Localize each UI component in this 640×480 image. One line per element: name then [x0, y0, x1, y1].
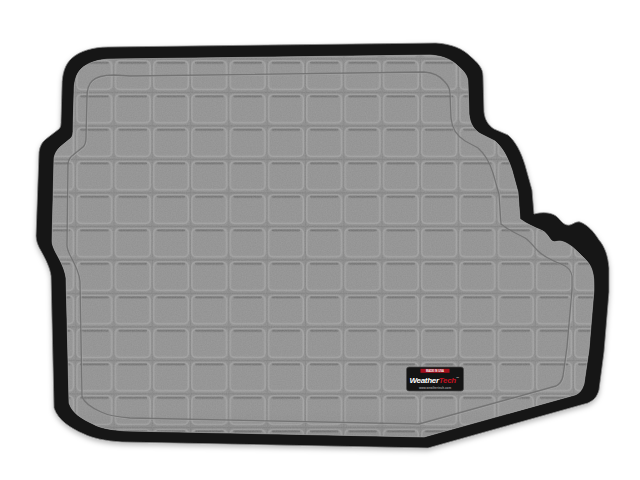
- product-photo-stage: MADE IN USA WeatherTech™ www.weathertech…: [0, 0, 640, 480]
- badge-url-label: www.weathertech.com: [418, 386, 452, 390]
- badge-made-in-usa-label: MADE IN USA: [426, 369, 444, 373]
- brand-trademark-symbol: ™: [456, 376, 459, 380]
- weathertech-badge: MADE IN USA WeatherTech™ www.weathertech…: [407, 367, 464, 391]
- brand-wordmark: WeatherTech™: [409, 376, 459, 385]
- brand-wordmark-tech: Tech: [439, 376, 457, 385]
- cargo-liner-photo: MADE IN USA WeatherTech™ www.weathertech…: [0, 0, 640, 480]
- brand-wordmark-weather: Weather: [409, 376, 440, 385]
